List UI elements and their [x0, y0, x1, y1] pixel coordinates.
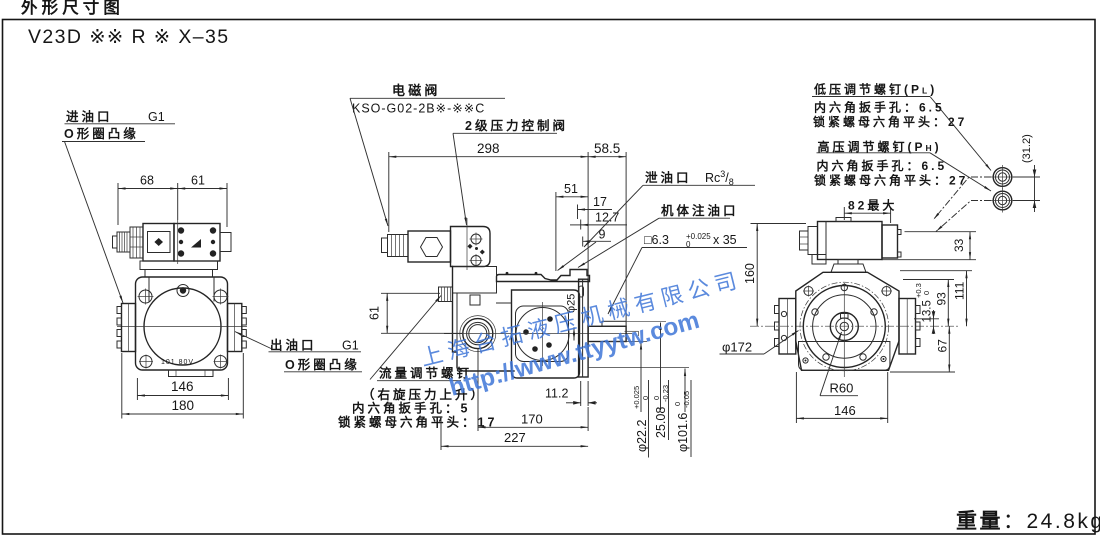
svg-text:x 35: x 35 [713, 233, 737, 247]
svg-text:锁紧螺母六角平头：17: 锁紧螺母六角平头：17 [338, 415, 497, 430]
svg-text:高压调节螺钉(PH): 高压调节螺钉(PH) [818, 139, 942, 154]
svg-text:锁紧螺母六角平头：27: 锁紧螺母六角平头：27 [814, 173, 968, 188]
svg-text:13.5: 13.5 [922, 300, 934, 322]
svg-text:O形圈凸缘: O形圈凸缘 [285, 357, 360, 372]
svg-text:111: 111 [953, 281, 967, 300]
svg-text:51: 51 [564, 182, 578, 196]
svg-text:φ22.2: φ22.2 [635, 420, 649, 452]
svg-text:9: 9 [599, 228, 606, 242]
svg-text:泄油口: 泄油口 [645, 170, 692, 185]
svg-text:170: 170 [521, 412, 543, 427]
svg-text:25.08: 25.08 [654, 407, 668, 438]
svg-text:锁紧螺母六角平头：27: 锁紧螺母六角平头：27 [813, 114, 967, 129]
svg-text:67: 67 [936, 339, 950, 353]
svg-text:内六角扳手孔：6.5: 内六角扳手孔：6.5 [817, 158, 948, 173]
svg-text:-0.05: -0.05 [682, 391, 691, 408]
svg-text:O形圈凸缘: O形圈凸缘 [64, 126, 139, 141]
svg-text:低压调节螺钉(PL): 低压调节螺钉(PL) [813, 82, 937, 97]
svg-text:2级压力控制阀: 2级压力控制阀 [465, 118, 568, 133]
svg-text:146: 146 [171, 379, 194, 394]
svg-text:298: 298 [477, 141, 500, 156]
svg-text:R60: R60 [830, 381, 854, 396]
svg-text:+0.025: +0.025 [632, 386, 641, 409]
svg-text:重量：24.8kg: 重量：24.8kg [956, 510, 1100, 533]
svg-text:160: 160 [743, 263, 757, 284]
svg-text:68: 68 [140, 174, 154, 188]
svg-text:φ101.6: φ101.6 [676, 413, 690, 452]
svg-text:17: 17 [593, 195, 607, 209]
svg-text:0: 0 [673, 402, 682, 406]
svg-text:(31.2): (31.2) [1021, 134, 1033, 163]
svg-text:机体注油口: 机体注油口 [661, 203, 739, 218]
svg-text:58.5: 58.5 [594, 141, 620, 156]
svg-text:进油口: 进油口 [66, 109, 113, 124]
svg-text:内六角扳手孔：6.5: 内六角扳手孔：6.5 [814, 100, 945, 115]
svg-text:101 80V: 101 80V [161, 359, 194, 366]
svg-text:82最大: 82最大 [848, 198, 897, 213]
svg-text:0: 0 [652, 396, 661, 400]
svg-text:电磁阀: 电磁阀 [392, 83, 441, 98]
svg-text:180: 180 [172, 398, 195, 413]
svg-text:内六角扳手孔：5: 内六角扳手孔：5 [352, 401, 470, 416]
svg-text:61: 61 [368, 306, 382, 320]
svg-text:G1: G1 [148, 110, 165, 124]
svg-text:93: 93 [935, 292, 949, 306]
svg-text:33: 33 [952, 238, 966, 252]
svg-text:出油口: 出油口 [270, 338, 317, 353]
svg-text:11.2: 11.2 [545, 387, 568, 401]
svg-text:G1: G1 [342, 339, 359, 353]
svg-text:□6.3: □6.3 [644, 233, 669, 247]
svg-text:227: 227 [504, 430, 526, 445]
svg-text:61: 61 [191, 174, 205, 188]
svg-text:外形尺寸图: 外形尺寸图 [21, 0, 124, 17]
svg-text:V23D ※※ R ※ X–35: V23D ※※ R ※ X–35 [28, 26, 230, 48]
svg-text:0: 0 [922, 291, 931, 295]
svg-text:KSO-G02-2B※-※※C: KSO-G02-2B※-※※C [352, 102, 485, 116]
svg-text:146: 146 [834, 403, 856, 418]
svg-text:φ172: φ172 [722, 340, 752, 355]
